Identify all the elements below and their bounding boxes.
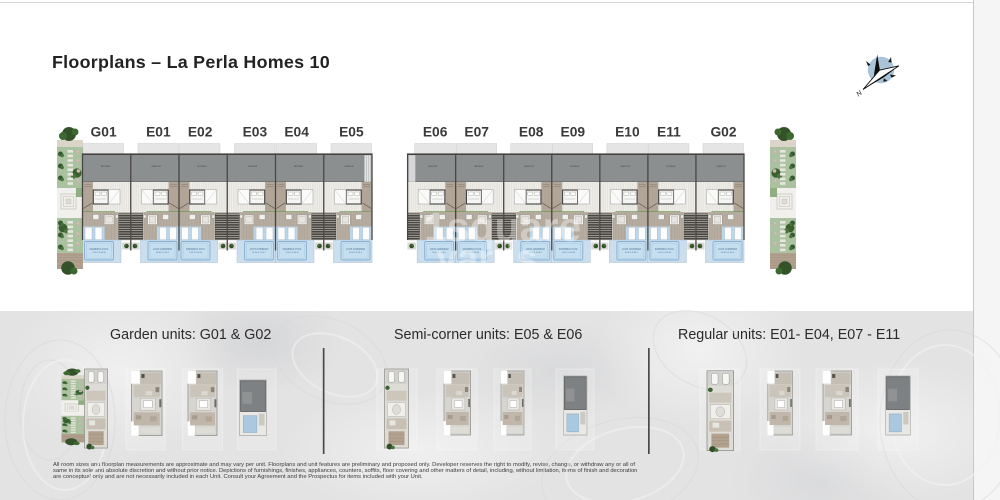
svg-text:E04: E04 <box>284 124 309 139</box>
svg-text:G02: G02 <box>710 124 736 139</box>
svg-text:G01: G01 <box>91 124 117 139</box>
svg-text:yards: yards <box>436 238 537 280</box>
svg-text:E10: E10 <box>615 124 640 139</box>
svg-text:E08: E08 <box>519 124 544 139</box>
svg-text:E01: E01 <box>146 124 171 139</box>
svg-text:E09: E09 <box>561 124 586 139</box>
svg-text:E11: E11 <box>657 124 681 139</box>
svg-text:E02: E02 <box>188 124 213 139</box>
svg-text:E03: E03 <box>243 124 268 139</box>
svg-text:E07: E07 <box>464 124 489 139</box>
svg-text:E06: E06 <box>423 124 448 139</box>
svg-text:E05: E05 <box>339 124 364 139</box>
svg-text:N: N <box>855 90 863 99</box>
